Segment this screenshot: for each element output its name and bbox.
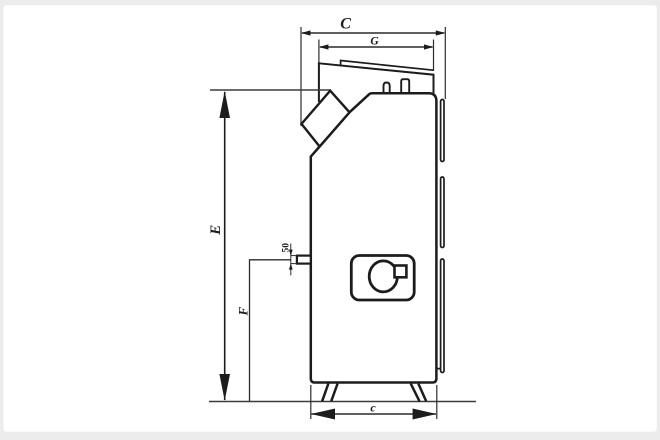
- svg-text:50: 50: [282, 243, 292, 253]
- svg-text:G: G: [370, 36, 379, 48]
- svg-text:E: E: [208, 225, 224, 236]
- svg-text:F: F: [235, 307, 250, 317]
- svg-text:c: c: [370, 401, 376, 415]
- svg-text:C: C: [340, 16, 351, 33]
